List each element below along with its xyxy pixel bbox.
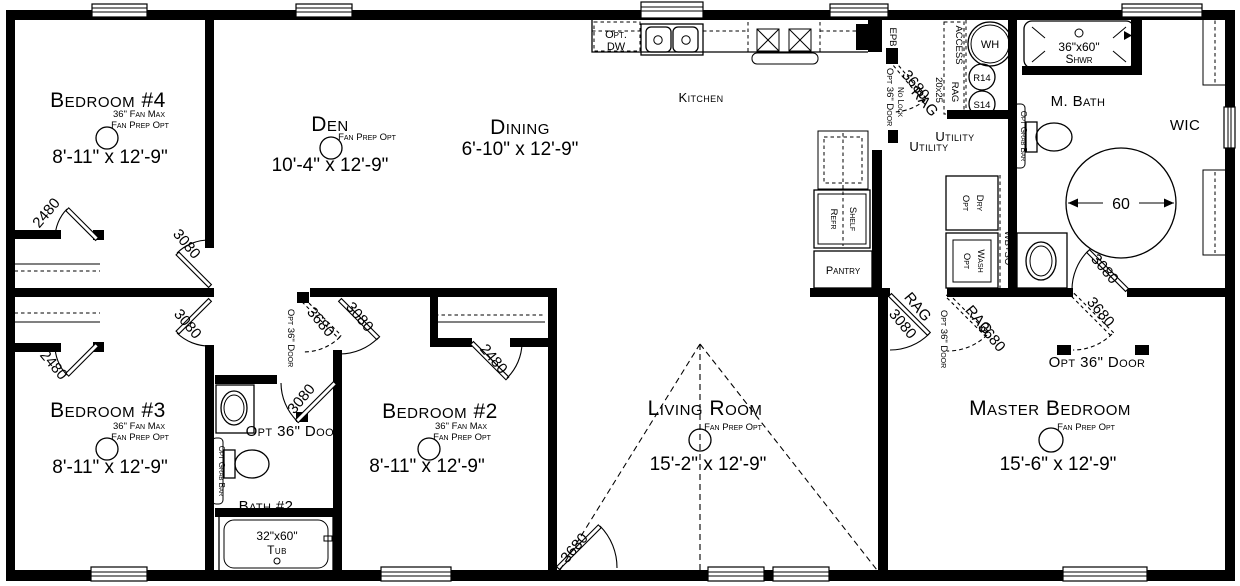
water-heater-icon: WH [968,22,1012,66]
bath2-toilet-icon [224,450,269,478]
epb-label: EPB [887,27,898,46]
door-size-label: 2480 [476,341,510,377]
room-dims: 8'-11" x 12'-9" [52,147,167,168]
room-name: Bedroom #2 [382,400,498,423]
room-wic: WIC [1170,117,1200,134]
kitchen-sink-icon [641,24,703,55]
tub-size-label: 32"x60" [256,529,297,543]
room-note: Fan Prep Opt [111,120,170,131]
washer: Opt Wash [946,233,998,288]
room-note: 36" Fan Max [113,421,165,432]
room-dims: 15'-6" x 12'-9" [1000,454,1117,475]
window [296,4,352,17]
tub-icon: 32"x60" Tub [219,516,333,572]
opt-36-door-label: Opt 36" Door [1049,354,1146,371]
window-sink-bump [641,2,703,18]
mbath-toilet-icon [1026,122,1072,152]
room-name: Dining [490,116,550,139]
dishwasher: Opt. DW [594,22,640,53]
bath2-fixtures: Opt Grab Bar 32"x60" Tub [212,385,333,572]
door-master-entry: 3680 Opt 36" Door [1049,294,1146,371]
opt-wash-label: Wash [975,249,986,272]
opt-36-door-label: Opt 36" Door [938,310,949,368]
shelf-label: Shelf [847,207,858,231]
opt-grab-bar-label: Opt Grab Bar [1019,111,1028,162]
room-bedroom3: Bedroom #3 36" Fan Max Fan Prep Opt 8'-1… [50,399,170,478]
pantry: Pantry [814,251,872,288]
doors: 2480 2480 3080 3080 3680 Opt 36" Door 30… [29,61,1145,570]
room-kitchen: Kitchen [679,90,724,105]
mbath-vanity [1017,233,1067,288]
room-dims: 10'-4" x 12'-9" [272,155,389,176]
door-master-hall: RAG 3080 Opt 36" Door [885,289,949,368]
window [1224,107,1235,148]
shower-icon: 36"x60" Shwr [1024,21,1134,68]
door-size-label: 3080 [169,226,203,262]
turning-circle: 60 [1066,148,1176,258]
room-name: Bedroom #3 [50,399,166,422]
window [1122,4,1202,17]
room-master: Master Bedroom Fan Prep Opt 15'-6" x 12'… [969,397,1131,475]
pantry-label: Pantry [826,265,861,277]
room-den: Den Fan Prep Opt 10'-4" x 12'-9" [272,113,397,176]
room-bedroom2: Bedroom #2 36" Fan Max Fan Prep Opt 8'-1… [369,400,498,477]
door-size-label: 3680 [974,319,1008,355]
utility-fixtures: EPB 20x25 ACCESS RAG WH R14 S14 Utility … [887,20,1013,288]
room-note: Fan Prep Opt [338,132,397,143]
door-size-label: 3680 [557,530,591,566]
room-name: WIC [1170,117,1200,134]
mbath-fixtures: 36"x60" Shwr Opt Grab Bar 60 [1014,21,1176,288]
room-note: Fan Prep Opt [704,422,763,433]
room-dims: 8'-11" x 12'-9" [369,456,484,477]
opt-dry-label: Dry [974,195,985,212]
wbso-label: WB+SO [1002,231,1013,266]
room-note: 36" Fan Max [435,421,487,432]
tub-label: Tub [267,543,287,557]
s14-label: S14 [974,100,991,111]
room-mbath: M. Bath [1051,93,1106,110]
window [1063,567,1147,581]
door-size-label: 3680 [1083,294,1117,330]
window [708,567,764,581]
room-note: Fan Prep Opt [111,432,170,443]
door-bed3-closet: 2480 [36,344,98,384]
fan-icon [96,127,118,149]
door-master-hall-optional: RAG 3680 [946,294,1009,356]
door-bed2-entry: 3080 [339,299,380,354]
rag-label: RAG [949,82,960,103]
window [830,4,888,17]
door-size-label: 3680 [303,304,337,340]
kitchen-fixtures: Opt. DW Refr Shelf Pantry [592,20,872,288]
r14-icon: R14 [969,64,995,90]
door-mbath-wic: 3080 [1072,250,1128,292]
floor-plan-svg: 2480 2480 3080 3080 3680 Opt 36" Door 30… [0,0,1240,586]
room-dims: 15'-2" x 12'-9" [650,454,767,475]
opt-dw-label: Opt. [605,29,627,41]
room-dining: Dining 6'-10" x 12'-9" [462,116,579,160]
door-size-label: 3080 [284,381,318,417]
room-bath2: Bath #2 [239,498,294,515]
room-dims: 8'-11" x 12'-9" [52,457,167,478]
door-hall-optional: 3680 Opt 36" Door [285,299,341,368]
door-kitchen-utility: 3680 RAG Opt 36" Door No Lock [884,61,941,126]
wh-label: WH [981,39,999,51]
opt-dry-label: Opt [960,195,971,212]
opt-36-door-label: Opt 36" Door [884,68,895,126]
refrigerator: Refr Shelf [814,131,870,248]
attic-access-size-label: 20x25 [933,77,944,103]
window [773,567,829,581]
door-bed3-entry: 3080 [170,299,211,346]
access-label: ACCESS [953,25,964,64]
window [381,567,451,581]
room-name: Living Room [648,397,763,420]
room-name: Bath #2 [239,498,294,515]
room-name: Master Bedroom [969,397,1131,420]
r14-label: R14 [973,73,990,84]
room-name: Kitchen [679,90,724,105]
refr-label: Refr [828,209,839,230]
room-name: M. Bath [1051,93,1106,110]
shower-label: Shwr [1065,52,1092,66]
door-size-label: 2480 [29,195,63,231]
room-dims: 6'-10" x 12'-9" [462,139,579,160]
room-bedroom4: Bedroom #4 36" Fan Max Fan Prep Opt 8'-1… [50,89,170,168]
door-living-exterior: 3680 [557,525,617,570]
fan-icon [1039,428,1063,452]
room-note: Fan Prep Opt [1057,422,1116,433]
utility-label: Utility [909,139,948,154]
window [91,567,147,581]
door-bath2-entry: 3080 Opt 36" Door [246,381,343,440]
stove-icon [748,22,820,64]
opt-36-door-label: Opt 36" Door [246,423,343,440]
opt-wash-label: Opt [961,253,972,270]
room-note: Fan Prep Opt [433,432,492,443]
window [92,4,147,17]
dryer: Opt Dry [946,176,998,230]
no-lock-label: No Lock [896,87,905,117]
opt-36-door-label: Opt 36" Door [285,309,296,367]
room-note: 36" Fan Max [113,109,165,120]
shower-head-icon [1124,31,1132,40]
opt-dw-label: DW [607,41,626,53]
floor-plan: 2480 2480 3080 3080 3680 Opt 36" Door 30… [0,0,1240,586]
room-living: Living Room Fan Prep Opt 15'-2" x 12'-9" [648,397,767,475]
door-size-label: 2480 [36,347,70,383]
turning-circle-label: 60 [1112,196,1130,213]
